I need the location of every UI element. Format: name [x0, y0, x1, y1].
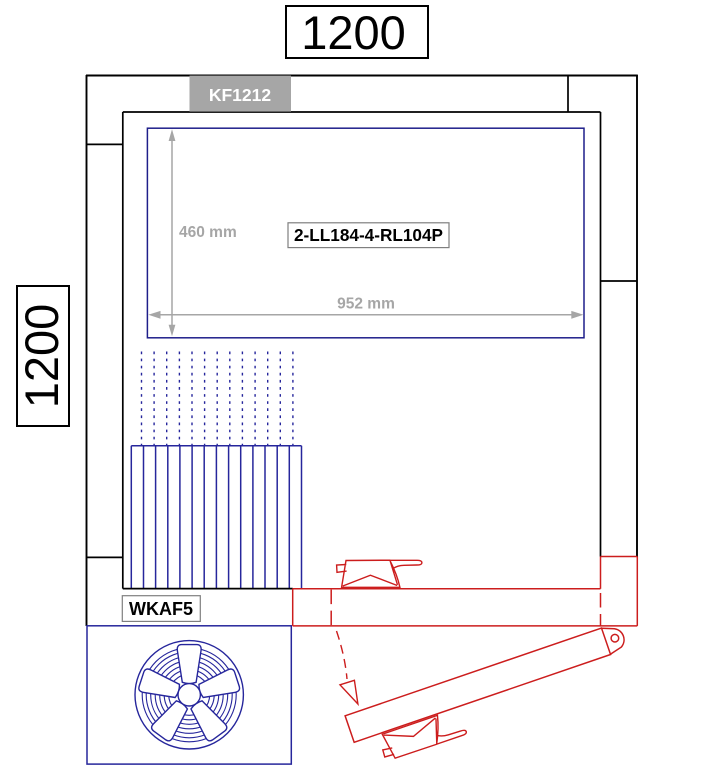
- svg-text:1200: 1200: [301, 6, 406, 59]
- svg-text:WKAF5: WKAF5: [129, 599, 193, 619]
- svg-text:2-LL184-4-RL104P: 2-LL184-4-RL104P: [294, 225, 443, 245]
- svg-text:952 mm: 952 mm: [337, 296, 395, 313]
- svg-text:1200: 1200: [15, 304, 68, 409]
- svg-text:460 mm: 460 mm: [179, 224, 237, 241]
- svg-text:KF1212: KF1212: [209, 85, 272, 105]
